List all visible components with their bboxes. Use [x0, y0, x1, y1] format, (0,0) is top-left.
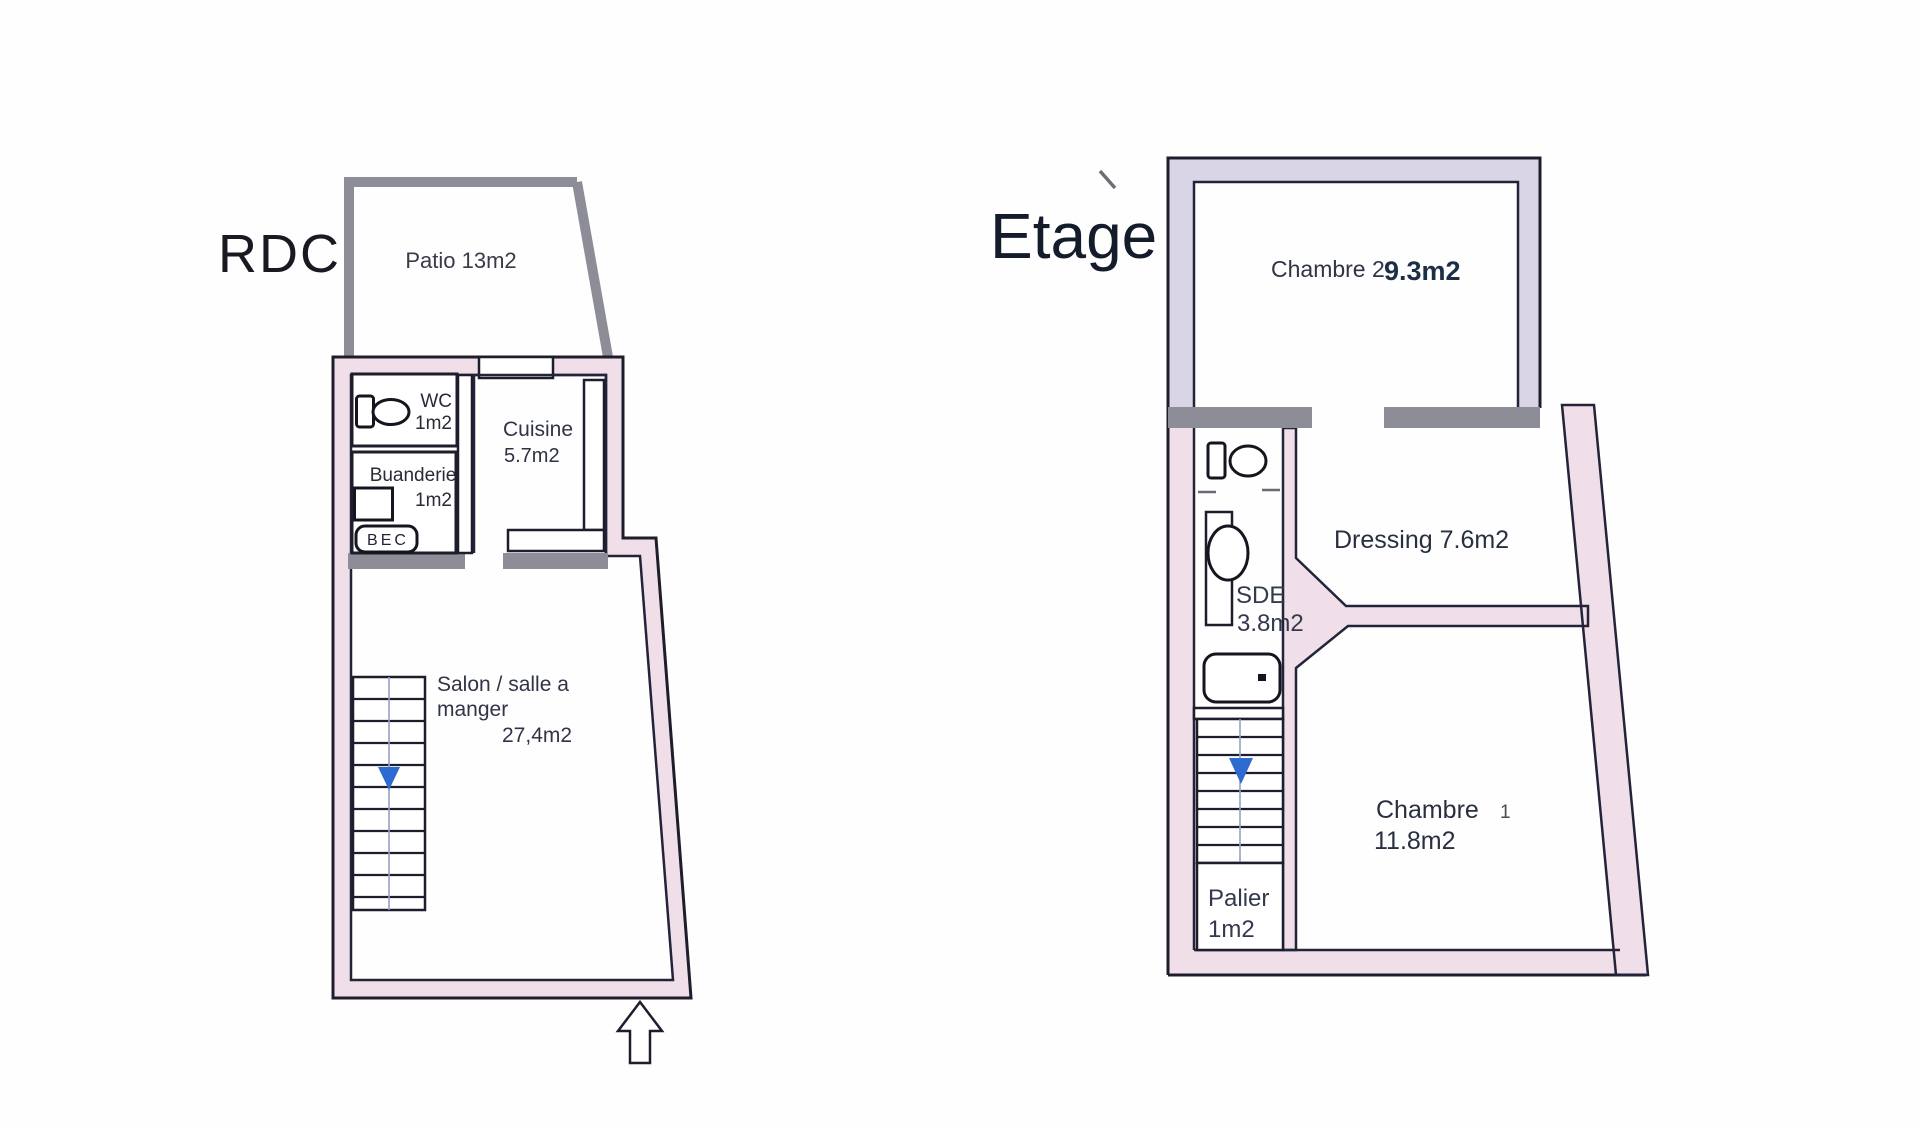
rdc-interior-wall-right	[503, 553, 608, 569]
toilet-tank	[1208, 443, 1225, 478]
wc-label: WC	[420, 391, 452, 412]
cuisine-label: Cuisine	[503, 418, 573, 441]
rdc-floor-plan: RDC Patio 13m2 WC 1m2 Buanderie 1m2	[218, 182, 691, 1063]
chambre2-wall-right	[1518, 182, 1540, 408]
chambre1-label: Chambre	[1376, 796, 1479, 824]
toilet-icon	[357, 396, 410, 427]
etage-stairs	[1197, 719, 1283, 863]
salon-area: 27,4m2	[502, 724, 572, 747]
palier-area: 1m2	[1208, 916, 1255, 943]
etage-wall-above-stairs	[1194, 708, 1283, 719]
toilet-tank	[357, 396, 374, 427]
etage-wall-right-slanted	[1562, 405, 1648, 975]
etage-title: Etage	[990, 200, 1157, 272]
etage-wall-bottom	[1168, 950, 1646, 975]
floor-plans-svg: RDC Patio 13m2 WC 1m2 Buanderie 1m2	[0, 0, 1920, 1130]
sink-basin	[1208, 526, 1248, 580]
chambre2-label: Chambre 2	[1271, 256, 1385, 282]
palier-label: Palier	[1208, 885, 1269, 912]
chambre2-area: 9.3m2	[1384, 256, 1461, 286]
dressing-label: Dressing 7.6m2	[1334, 526, 1509, 554]
etage-floor-plan: Etage SDE	[990, 158, 1648, 975]
toilet-bowl	[373, 400, 409, 425]
rdc-interior-wall-vertical	[458, 375, 472, 553]
shower-tray	[1204, 654, 1280, 702]
toilet-icon-etage	[1208, 443, 1266, 478]
sde-area: 3.8m2	[1237, 610, 1304, 637]
chambre1-area: 11.8m2	[1374, 827, 1456, 855]
buanderie-area: 1m2	[415, 490, 452, 511]
chambre2-outer-outline	[1168, 158, 1540, 408]
sde-label: SDE	[1236, 582, 1285, 609]
etage-interior-wall-gray-left	[1168, 407, 1312, 428]
chambre1-number: 1	[1500, 802, 1511, 823]
entrance-arrow-icon	[618, 1002, 662, 1063]
chambre2-inner-outline	[1194, 182, 1518, 408]
scan-artifact-mark	[1100, 171, 1115, 188]
salon-label-line2: manger	[437, 698, 508, 721]
patio-label: Patio 13m2	[405, 248, 516, 273]
etage-outline-junction	[1283, 428, 1588, 950]
rdc-interior-wall-left	[348, 553, 465, 569]
salon-label-line1: Salon / salle a	[437, 673, 569, 696]
bec-label: BEC	[367, 532, 409, 549]
shower-icon	[1204, 654, 1280, 702]
chambre2-wall-top	[1168, 158, 1540, 182]
etage-interior-wall-gray-right	[1384, 407, 1540, 428]
kitchen-counter-vertical	[584, 380, 604, 530]
cuisine-area: 5.7m2	[504, 445, 560, 467]
rdc-stairs	[353, 677, 425, 910]
floor-plan-page: RDC Patio 13m2 WC 1m2 Buanderie 1m2	[0, 0, 1920, 1130]
chambre2-wall-left	[1168, 182, 1194, 408]
patio-wall-slanted	[577, 182, 608, 357]
etage-interior-wall-junction	[1283, 428, 1588, 950]
wc-area: 1m2	[415, 413, 452, 434]
toilet-bowl	[1230, 446, 1266, 476]
buanderie-label: Buanderie	[370, 465, 457, 486]
washing-machine-icon	[355, 488, 393, 520]
shower-drain	[1258, 674, 1266, 681]
etage-wall-left	[1168, 428, 1194, 975]
rdc-title: RDC	[218, 224, 341, 284]
kitchen-counter-bottom	[508, 530, 604, 551]
